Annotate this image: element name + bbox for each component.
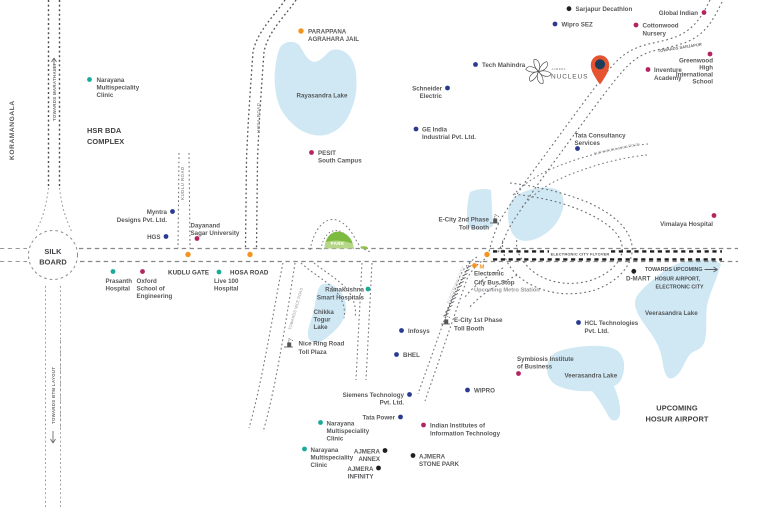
svg-text:Lake: Lake [314,324,329,331]
svg-text:Nursery: Nursery [643,31,667,38]
svg-text:Vimalaya Hospital: Vimalaya Hospital [660,221,713,228]
svg-text:Toll Plaza: Toll Plaza [299,349,328,356]
svg-text:KUDLU ROAD: KUDLU ROAD [180,166,185,200]
svg-text:Multispeciality: Multispeciality [311,455,354,462]
svg-text:PARK: PARK [331,241,345,246]
svg-text:Clinic: Clinic [97,92,114,99]
svg-text:Upcoming Metro Station: Upcoming Metro Station [474,288,540,294]
svg-text:NUCLEUS: NUCLEUS [551,74,588,81]
svg-text:HOSUR AIRPORT: HOSUR AIRPORT [645,415,708,424]
svg-text:Narayana: Narayana [97,77,125,84]
svg-text:Sarjapur Decathlon: Sarjapur Decathlon [576,6,633,13]
svg-text:Infosys: Infosys [408,328,430,335]
svg-text:Symbiosis Institute: Symbiosis Institute [517,356,574,363]
svg-text:D-MART: D-MART [626,276,651,283]
svg-text:Services: Services [575,140,601,147]
svg-text:AJMERA: AJMERA [347,466,374,473]
svg-text:Electronic: Electronic [474,271,504,278]
svg-text:M: M [480,264,485,270]
svg-text:Tech Mahindra: Tech Mahindra [482,62,526,69]
svg-text:Engineering: Engineering [137,293,173,300]
svg-text:School of: School of [137,286,166,293]
svg-text:Wipro SEZ: Wipro SEZ [562,22,593,29]
svg-text:Rayasandra Lake: Rayasandra Lake [297,93,348,100]
svg-text:Oxford: Oxford [137,278,158,285]
svg-text:HSR BDA: HSR BDA [87,126,122,135]
svg-text:GE India: GE India [422,127,448,134]
svg-text:Cottonwood: Cottonwood [643,23,679,30]
svg-text:COMPLEX: COMPLEX [87,137,124,146]
svg-text:BHEL: BHEL [403,352,420,359]
svg-text:UPCOMING: UPCOMING [656,404,698,413]
svg-text:Narayana: Narayana [327,421,355,428]
svg-text:City Bus Stop: City Bus Stop [474,280,515,287]
svg-text:Global Indian: Global Indian [659,10,698,17]
svg-text:Multispeciality: Multispeciality [97,85,140,92]
svg-text:Indian Institutes of: Indian Institutes of [430,423,486,430]
svg-text:Industrial Pvt. Ltd.: Industrial Pvt. Ltd. [422,134,476,141]
svg-text:HCL Technologies: HCL Technologies [585,320,639,327]
svg-text:Designs Pvt. Ltd.: Designs Pvt. Ltd. [117,217,167,224]
svg-text:ELECTRONIC CITY FLYOVER: ELECTRONIC CITY FLYOVER [551,251,610,256]
svg-text:Dayanand: Dayanand [191,223,221,230]
svg-text:STONE PARK: STONE PARK [419,461,460,468]
svg-text:PESIT: PESIT [318,150,336,157]
svg-text:Narayana: Narayana [311,447,339,454]
svg-text:HGS: HGS [147,234,160,241]
svg-text:ELECTRONIC CITY: ELECTRONIC CITY [656,285,704,291]
svg-text:Hospital: Hospital [106,286,131,293]
svg-text:of Business: of Business [517,364,553,371]
svg-text:Hospital: Hospital [214,286,239,293]
svg-text:Veerasandra Lake: Veerasandra Lake [565,373,618,380]
svg-text:South Campus: South Campus [318,158,362,165]
svg-text:Tata Power: Tata Power [362,415,395,422]
svg-text:AGRAHARA JAIL: AGRAHARA JAIL [308,36,359,43]
svg-text:Live 100: Live 100 [214,278,239,285]
svg-text:Myntra: Myntra [147,209,168,216]
svg-text:Chikka: Chikka [314,309,335,316]
svg-text:Togur: Togur [314,317,332,324]
svg-text:INFINITY: INFINITY [348,474,375,481]
svg-text:Multispeciality: Multispeciality [327,428,370,435]
svg-text:AJMERA: AJMERA [552,67,567,71]
svg-text:AJMERA: AJMERA [354,449,381,456]
svg-text:Clinic: Clinic [311,462,328,469]
svg-text:KORAMANGALA: KORAMANGALA [9,100,16,160]
svg-text:HOSUR AIRPORT,: HOSUR AIRPORT, [655,277,701,283]
svg-text:WIPRO: WIPRO [474,388,495,395]
svg-text:Ramakrishna: Ramakrishna [325,287,364,294]
svg-text:Siemens Technology: Siemens Technology [343,392,405,399]
svg-text:High: High [699,65,713,72]
svg-text:HOSA ROAD: HOSA ROAD [256,103,261,133]
svg-text:E-City 2nd Phase: E-City 2nd Phase [438,217,489,224]
svg-text:Tata Consultancy: Tata Consultancy [575,133,627,140]
svg-text:Greenwood: Greenwood [679,58,713,65]
svg-text:Veerasandra Lake: Veerasandra Lake [645,310,698,317]
svg-text:TOWARDS UPCOMING: TOWARDS UPCOMING [645,267,703,273]
svg-text:TOWARDS BTM LAYOUT: TOWARDS BTM LAYOUT [51,367,56,424]
svg-text:Toll Booth: Toll Booth [454,326,484,333]
svg-text:Toll Booth: Toll Booth [459,225,489,232]
svg-text:E-City 1st Phase: E-City 1st Phase [454,317,503,324]
svg-text:International: International [676,72,713,79]
svg-text:Pvt. Ltd.: Pvt. Ltd. [585,328,610,335]
svg-text:Sagar University: Sagar University [191,230,240,237]
svg-text:HOSA ROAD: HOSA ROAD [230,270,269,277]
svg-text:Prasanth: Prasanth [106,278,133,285]
svg-text:SILK: SILK [44,247,62,256]
svg-text:Pvt. Ltd.: Pvt. Ltd. [380,400,405,407]
svg-text:Nice Ring Road: Nice Ring Road [299,341,345,348]
svg-text:AJMERA: AJMERA [419,454,446,461]
svg-text:BOARD: BOARD [39,258,67,267]
svg-text:Information Technology: Information Technology [430,431,501,438]
svg-text:KUDLU GATE: KUDLU GATE [168,270,209,277]
svg-text:ANNEX: ANNEX [358,456,381,463]
svg-text:School: School [692,79,713,86]
svg-text:Smart Hospitals: Smart Hospitals [317,295,365,302]
svg-text:Schneider: Schneider [412,86,443,93]
svg-text:TOWARDS MARATHALLI: TOWARDS MARATHALLI [52,64,57,121]
svg-text:Clinic: Clinic [327,436,344,443]
svg-text:Electric: Electric [420,93,443,100]
svg-text:PARAPPANA: PARAPPANA [308,29,347,36]
